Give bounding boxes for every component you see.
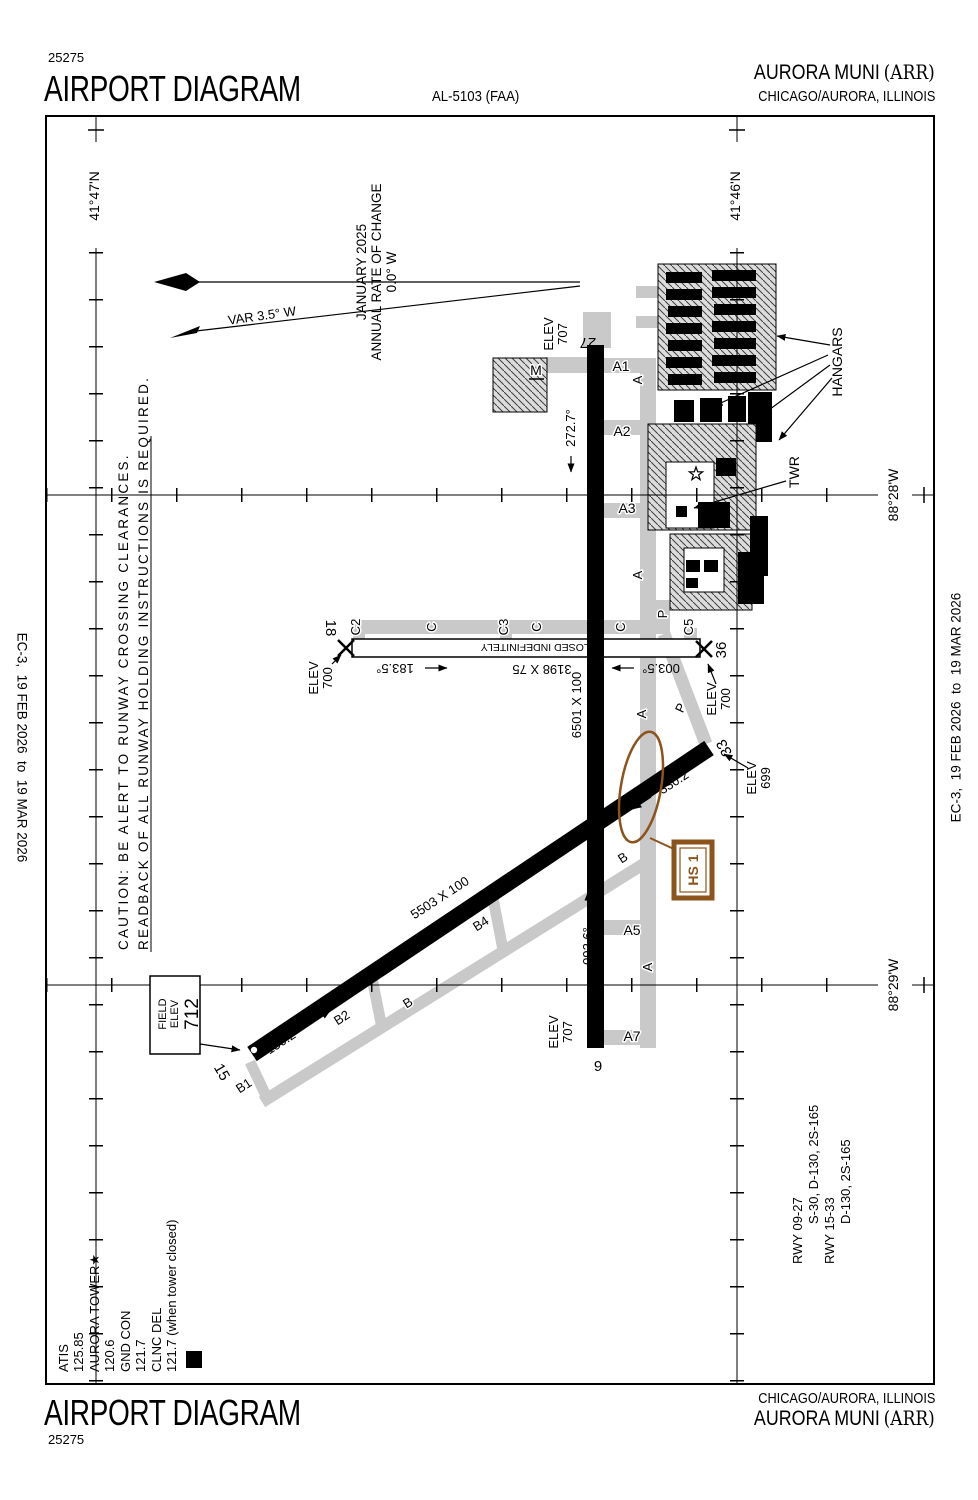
elev-36-leader-arrow — [708, 664, 716, 684]
taxiway-label-b2: B2 — [331, 1007, 353, 1028]
lat-lon-grid — [46, 116, 934, 1384]
runway-18-36-dimensions: 3198 X 75 — [512, 662, 571, 677]
ground-freq-label: GND CON — [118, 1311, 133, 1372]
airport-city-bottom: CHICAGO/AURORA, ILLINOIS — [758, 1390, 935, 1407]
elev-33-leader-arrow — [724, 754, 748, 768]
elev-33-label: ELEV — [744, 761, 759, 795]
caution-line2: READBACK OF ALL RUNWAY HOLDING INSTRUCTI… — [136, 376, 151, 950]
hangars-leader-4 — [779, 378, 832, 440]
compass-rose: VAR 3.5° W JANUARY 2025 ANNUAL RATE OF C… — [154, 183, 580, 360]
taxiway-label-m: M — [530, 362, 542, 378]
taxiway-label-b-2: B — [615, 849, 630, 866]
airport-city-top: CHICAGO/AURORA, ILLINOIS — [758, 88, 935, 105]
taxiway-label-c-1: C — [424, 622, 439, 631]
runway-36-heading: 003.5° — [642, 661, 680, 676]
chart-number-top: 25275 — [48, 50, 84, 65]
field-elev-word2: ELEV — [169, 999, 181, 1028]
taxiway-label-a-2: A — [630, 570, 645, 579]
tower-freq: 120.6 — [102, 1339, 117, 1372]
hangars-label: HANGARS — [829, 327, 845, 396]
runway-18-number: 18 — [322, 620, 339, 637]
field-elev-leader-arrow — [200, 1044, 240, 1050]
procedure-id: AL-5103 (FAA) — [432, 88, 519, 105]
lon-label-upper: 88°28'W — [885, 468, 901, 521]
effective-dates-right: EC-3, 19 FEB 2026 to 19 MAR 2026 — [949, 458, 964, 958]
airport-id-top: (ARR) — [884, 60, 935, 84]
tower-label: TWR — [786, 456, 802, 488]
elev-36-value: 700 — [718, 688, 733, 710]
caution-line1: CAUTION: BE ALERT TO RUNWAY CROSSING CLE… — [116, 453, 131, 950]
taxiway-label-a-4: A — [640, 962, 655, 971]
hangars-leader-1 — [777, 336, 830, 345]
hangar-lane-2 — [636, 316, 658, 328]
chart-number-bottom: 25275 — [48, 1432, 84, 1447]
taxiway-label-p-1: P — [655, 610, 670, 619]
elev-9-label: ELEV — [546, 1015, 561, 1049]
runway-15-number: 15 — [210, 1061, 233, 1084]
taxiway-m-segment — [545, 357, 589, 373]
airport-id-bottom: (ARR) — [884, 1406, 935, 1430]
page-title-bottom: AIRPORT DIAGRAM — [44, 1392, 301, 1434]
taxiway-b1-connector — [250, 1062, 268, 1100]
runway-9-number: 9 — [594, 1058, 602, 1075]
hangar-lane-1 — [636, 286, 658, 298]
field-elev-word1: FIELD — [157, 998, 169, 1029]
runway-09-27-dimensions: 6501 X 100 — [569, 672, 584, 739]
runway-data-block: RWY 09-27 S-30, D-130, 2S-165 RWY 15-33 … — [790, 1105, 853, 1264]
lat-label-left: 41°47'N — [86, 171, 102, 221]
runway-data-line4: D-130, 2S-165 — [838, 1139, 853, 1224]
runway-27-heading: 272.7° — [563, 409, 578, 447]
clearance-delivery-d-letter: D — [187, 1355, 202, 1364]
annual-rate-label: ANNUAL RATE OF CHANGE — [369, 183, 384, 360]
taxiway-label-a1: A1 — [612, 358, 629, 374]
map-border — [46, 116, 934, 1384]
elev-27-value: 707 — [555, 323, 570, 345]
taxiway-label-b4: B4 — [470, 913, 492, 934]
airport-name-bottom: AURORA MUNI — [754, 1407, 880, 1430]
caution-note: CAUTION: BE ALERT TO RUNWAY CROSSING CLE… — [116, 376, 151, 952]
hotspot-label: HS 1 — [685, 854, 701, 885]
elev-27-label: ELEV — [541, 317, 556, 351]
taxiway-label-c3: C3 — [496, 619, 511, 636]
airport-map: VAR 3.5° W JANUARY 2025 ANNUAL RATE OF C… — [45, 115, 935, 1385]
lat-label-right: 41°46'N — [727, 171, 743, 221]
taxiway-label-a7: A7 — [623, 1028, 640, 1044]
runway-15-threshold-dot — [251, 1047, 257, 1053]
field-elev-value: 712 — [182, 998, 203, 1030]
building-2 — [716, 458, 736, 476]
atis-label: ATIS — [56, 1344, 71, 1372]
taxiway-label-a-1: A — [630, 375, 645, 384]
taxiway-label-c-2: C — [529, 622, 544, 631]
runway-33-number: 33 — [713, 736, 736, 759]
elev-9-value: 707 — [560, 1021, 575, 1043]
tower-freq-label: AURORA TOWER★ — [87, 1254, 102, 1372]
elev-33-value: 699 — [758, 767, 773, 789]
control-tower-building — [676, 506, 687, 517]
taxiway-label-a2: A2 — [613, 423, 630, 439]
field-elevation-box: FIELD ELEV 712 — [150, 976, 240, 1054]
aprons-buildings — [493, 264, 776, 610]
elev-18-value: 700 — [320, 667, 335, 689]
taxiway-label-c-3: C — [613, 622, 628, 631]
runway-9-heading: 092.6° — [580, 927, 595, 965]
page-title-top: AIRPORT DIAGRAM — [44, 68, 301, 110]
clearance-freq-label: CLNC DEL — [149, 1308, 164, 1372]
airport-diagram-page: 25275 AIRPORT DIAGRAM AL-5103 (FAA) AURO… — [0, 0, 978, 1500]
taxiway-label-b1: B1 — [233, 1075, 255, 1096]
taxiway-label-c2: C2 — [348, 619, 363, 636]
taxiway-label-a5: A5 — [623, 922, 640, 938]
runway-data-line3: RWY 15-33 — [822, 1197, 837, 1264]
airport-title-bottom: AURORA MUNI (ARR) — [754, 1406, 935, 1431]
effective-dates-left: EC-3, 19 FEB 2026 to 19 MAR 2026 — [15, 498, 30, 998]
variation-label: VAR 3.5° W — [227, 303, 298, 327]
runway-data-line2: S-30, D-130, 2S-165 — [806, 1105, 821, 1224]
elev-36-label: ELEV — [704, 682, 719, 716]
taxiway-label-c5: C5 — [681, 619, 696, 636]
annual-rate-value: 0.0° W — [384, 251, 399, 292]
frequency-block: ATIS 125.85 AURORA TOWER★ 120.6 GND CON … — [56, 1220, 202, 1372]
runway-18-36-status: CLOSED INDEFINITELY — [481, 641, 598, 653]
clearance-freq: 121.7 (when tower closed) — [164, 1220, 179, 1372]
elev-18-leader-arrow — [332, 655, 341, 664]
airport-name-top: AURORA MUNI — [754, 61, 880, 84]
variation-date: JANUARY 2025 — [354, 224, 369, 320]
airport-title-top: AURORA MUNI (ARR) — [754, 60, 935, 85]
atis-freq: 125.85 — [71, 1332, 86, 1372]
true-north-arrowhead-icon — [154, 273, 200, 291]
runway-18-heading: 183.5° — [376, 661, 414, 676]
runway-data-line1: RWY 09-27 — [790, 1197, 805, 1264]
taxiway-label-a-3: A — [634, 709, 649, 718]
ground-freq: 121.7 — [133, 1339, 148, 1372]
runway-27-number: 27 — [580, 334, 597, 351]
lon-label-lower: 88°29'W — [885, 958, 901, 1011]
taxiway-label-a3: A3 — [618, 500, 635, 516]
runway-36-number: 36 — [713, 642, 730, 659]
elev-18-label: ELEV — [306, 661, 321, 695]
magnetic-north-half-arrowhead-icon — [170, 326, 200, 338]
